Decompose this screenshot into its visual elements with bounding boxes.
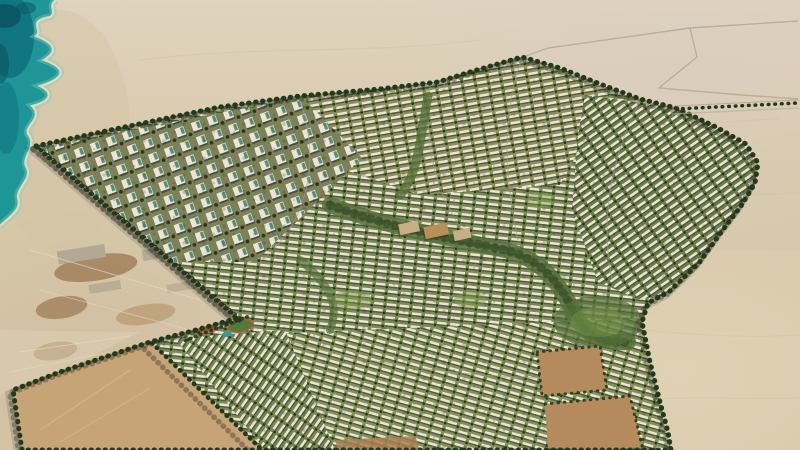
- park-lawn: [332, 290, 372, 310]
- park-lawn: [454, 292, 486, 308]
- vacant-parcel: [545, 396, 643, 450]
- vacant-parcel: [537, 346, 607, 396]
- park-lawn: [526, 192, 554, 208]
- park-lawn: [570, 307, 626, 337]
- reef-patch: [16, 2, 36, 14]
- aerial-scene: [0, 0, 800, 450]
